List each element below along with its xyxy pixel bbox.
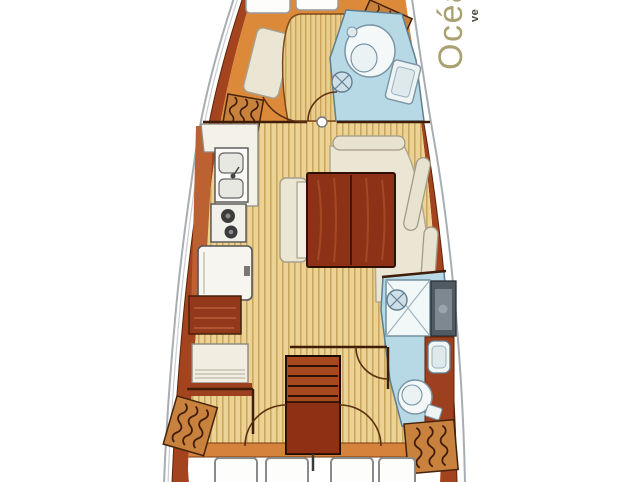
galley-fridge	[198, 246, 252, 300]
aft-sink	[428, 341, 450, 373]
settee-back-cushion	[333, 136, 405, 150]
brand-text: Océa	[432, 0, 470, 70]
saloon-table	[307, 173, 395, 267]
bow-cushion-1	[246, 0, 290, 13]
chart-table	[192, 344, 248, 383]
aft-shower-counter	[431, 281, 456, 336]
bow-cushion-2	[296, 0, 338, 10]
door-pivot	[317, 117, 327, 127]
galley-sink	[215, 148, 248, 202]
table-leaf-edge	[297, 182, 307, 258]
berth-cushion	[331, 458, 373, 482]
shower-drain-icon	[332, 72, 352, 92]
berth-cushion	[379, 458, 415, 482]
companionway-steps	[286, 356, 340, 471]
berth-cushion	[215, 458, 257, 482]
aft-shower-pan	[386, 280, 430, 336]
yacht-floorplan-svg: Océa ve	[0, 0, 643, 482]
forward-toilet-flush	[347, 27, 357, 37]
berth-cushion	[266, 458, 308, 482]
floorplan-stage: Océa ve	[0, 0, 643, 482]
galley-stove	[211, 204, 246, 242]
brand-subtext: ve	[469, 9, 481, 22]
forward-toilet-bowl	[351, 44, 377, 72]
